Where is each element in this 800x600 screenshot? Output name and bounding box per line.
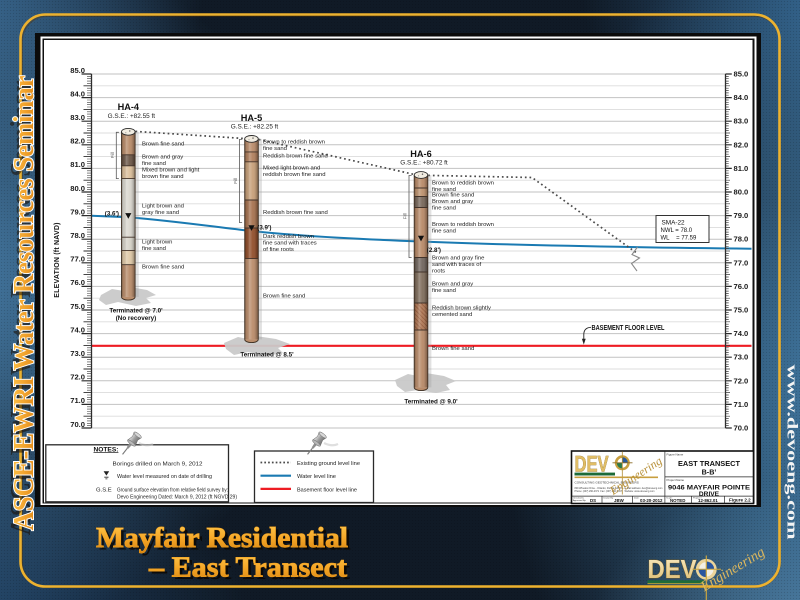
svg-text:ASCE-EWRI Water Resources Semi: ASCE-EWRI Water Resources Seminar — [8, 75, 40, 530]
svg-text:80.0: 80.0 — [734, 188, 749, 197]
svg-text:Brown fine sand: Brown fine sand — [142, 265, 184, 271]
svg-text:(3.9'): (3.9') — [257, 225, 271, 232]
svg-text:82.0: 82.0 — [734, 140, 749, 149]
svg-text:Brown fine sand: Brown fine sand — [263, 294, 305, 300]
svg-text:70.0: 70.0 — [70, 420, 85, 429]
svg-text:NWL = 78.0: NWL = 78.0 — [661, 228, 693, 234]
svg-text:Figure Name: Figure Name — [667, 452, 684, 456]
svg-text:G.S.E.: +82.55 ft: G.S.E.: +82.55 ft — [108, 113, 156, 120]
svg-text:Figure 2.2: Figure 2.2 — [729, 498, 751, 503]
svg-text:03-20-2012: 03-20-2012 — [640, 498, 663, 503]
svg-text:Terminated @ 7.0': Terminated @ 7.0' — [109, 308, 163, 315]
svg-text:G.S.E.: +80.72 ft: G.S.E.: +80.72 ft — [400, 160, 448, 167]
svg-text:74.0: 74.0 — [70, 325, 85, 334]
svg-text:78.0: 78.0 — [70, 231, 85, 240]
svg-text:Fill: Fill — [233, 178, 238, 184]
svg-text:JBW: JBW — [614, 498, 625, 503]
svg-text:75.0: 75.0 — [734, 306, 749, 315]
svg-text:85.0: 85.0 — [70, 66, 85, 75]
svg-text:Borings drilled on March 9, 20: Borings drilled on March 9, 2012 — [113, 461, 203, 467]
svg-text:71.0: 71.0 — [70, 396, 85, 405]
svg-text:Water level measured on date o: Water level measured on date of drilling — [117, 474, 212, 480]
svg-text:Brown fine sand: Brown fine sand — [142, 142, 184, 148]
svg-text:73.0: 73.0 — [734, 353, 749, 362]
svg-text:DS: DS — [590, 498, 596, 503]
svg-text:HA-6: HA-6 — [410, 149, 431, 159]
svg-text:Terminated @ 9.0': Terminated @ 9.0' — [404, 399, 458, 406]
svg-text:ELEVATION (ft NAVD): ELEVATION (ft NAVD) — [54, 222, 61, 297]
svg-text:Terminated @ 8.5': Terminated @ 8.5' — [240, 352, 294, 359]
svg-text:73.0: 73.0 — [70, 349, 85, 358]
svg-text:G.S.E: G.S.E — [96, 487, 112, 493]
svg-text:Date:: Date: — [634, 497, 640, 500]
svg-text:Existing ground level line: Existing ground level line — [297, 461, 361, 467]
svg-text:71.0: 71.0 — [734, 400, 749, 409]
svg-text:BASEMENT FLOOR LEVEL: BASEMENT FLOOR LEVEL — [592, 325, 665, 332]
svg-text:Approved By:: Approved By: — [573, 499, 587, 502]
svg-text:77.0: 77.0 — [70, 255, 85, 264]
svg-text:Reddish brown fine sand: Reddish brown fine sand — [263, 210, 328, 216]
svg-text:Devo Engineering Dated: March: Devo Engineering Dated: March 9, 2012 (f… — [117, 494, 237, 500]
svg-text:79.0: 79.0 — [734, 211, 749, 220]
svg-text:Project Name: Project Name — [667, 478, 685, 482]
svg-text:HA-4: HA-4 — [118, 102, 140, 112]
svg-text:75.0: 75.0 — [70, 302, 85, 311]
svg-text:Ground surface elevation from: Ground surface elevation from relative f… — [117, 487, 228, 493]
svg-text:76.0: 76.0 — [734, 282, 749, 291]
svg-text:84.0: 84.0 — [70, 89, 85, 98]
svg-text:12-862.01: 12-862.01 — [698, 498, 718, 503]
svg-text:Drawn By:: Drawn By: — [604, 497, 614, 500]
svg-text:85.0: 85.0 — [734, 70, 749, 79]
svg-text:74.0: 74.0 — [734, 329, 749, 338]
svg-text:www.devoeng.com: www.devoeng.com — [784, 365, 800, 540]
svg-text:79.0: 79.0 — [70, 207, 85, 216]
svg-text:HA-5: HA-5 — [241, 113, 262, 123]
svg-text:82.0: 82.0 — [70, 137, 85, 146]
svg-text:76.0: 76.0 — [70, 278, 85, 287]
svg-text:NOTED: NOTED — [670, 498, 685, 503]
svg-text:77.0: 77.0 — [734, 258, 749, 267]
svg-text:Mixed light brown andreddish b: Mixed light brown andreddish brown fine … — [263, 166, 326, 178]
svg-text:Basement floor level line: Basement floor level line — [297, 487, 358, 493]
svg-text:Water level line: Water level line — [297, 474, 337, 480]
svg-text:81.0: 81.0 — [70, 160, 85, 169]
svg-text:72.0: 72.0 — [734, 376, 749, 385]
svg-text:70.0: 70.0 — [734, 424, 749, 433]
svg-text:Mayfair Residential: Mayfair Residential — [96, 522, 348, 554]
svg-text:Brown fine sand: Brown fine sand — [432, 193, 474, 199]
svg-text:WL = 77.59: WL = 77.59 — [661, 235, 698, 241]
svg-text:83.0: 83.0 — [70, 113, 85, 122]
svg-text:Website: www.devoeng.com: Website: www.devoeng.com — [625, 490, 655, 493]
svg-text:Fill: Fill — [110, 152, 115, 158]
svg-text:80.0: 80.0 — [70, 184, 85, 193]
svg-text:G.S.E.: +82.25 ft: G.S.E.: +82.25 ft — [231, 124, 279, 131]
svg-text:B-B’: B-B’ — [702, 467, 717, 476]
svg-text:84.0: 84.0 — [734, 93, 749, 102]
svg-text:NOTES:: NOTES: — [94, 446, 119, 453]
svg-text:DEV: DEV — [648, 556, 697, 584]
svg-text:SMA-22: SMA-22 — [662, 220, 686, 227]
svg-text:(2.8'): (2.8') — [427, 247, 441, 254]
svg-text:78.0: 78.0 — [734, 235, 749, 244]
svg-text:72.0: 72.0 — [70, 373, 85, 382]
svg-text:(No recovery): (No recovery) — [116, 315, 157, 322]
svg-text:– East Transect: – East Transect — [148, 552, 347, 584]
svg-text:Reddish brown fine sand: Reddish brown fine sand — [263, 154, 328, 160]
svg-text:Light brown andgray fine sand: Light brown andgray fine sand — [142, 204, 184, 216]
svg-text:81.0: 81.0 — [734, 164, 749, 173]
svg-text:Fill: Fill — [403, 213, 408, 219]
svg-text:83.0: 83.0 — [734, 117, 749, 126]
svg-text:Brown fine sand: Brown fine sand — [432, 346, 474, 352]
svg-text:(3.6'): (3.6') — [105, 211, 119, 218]
